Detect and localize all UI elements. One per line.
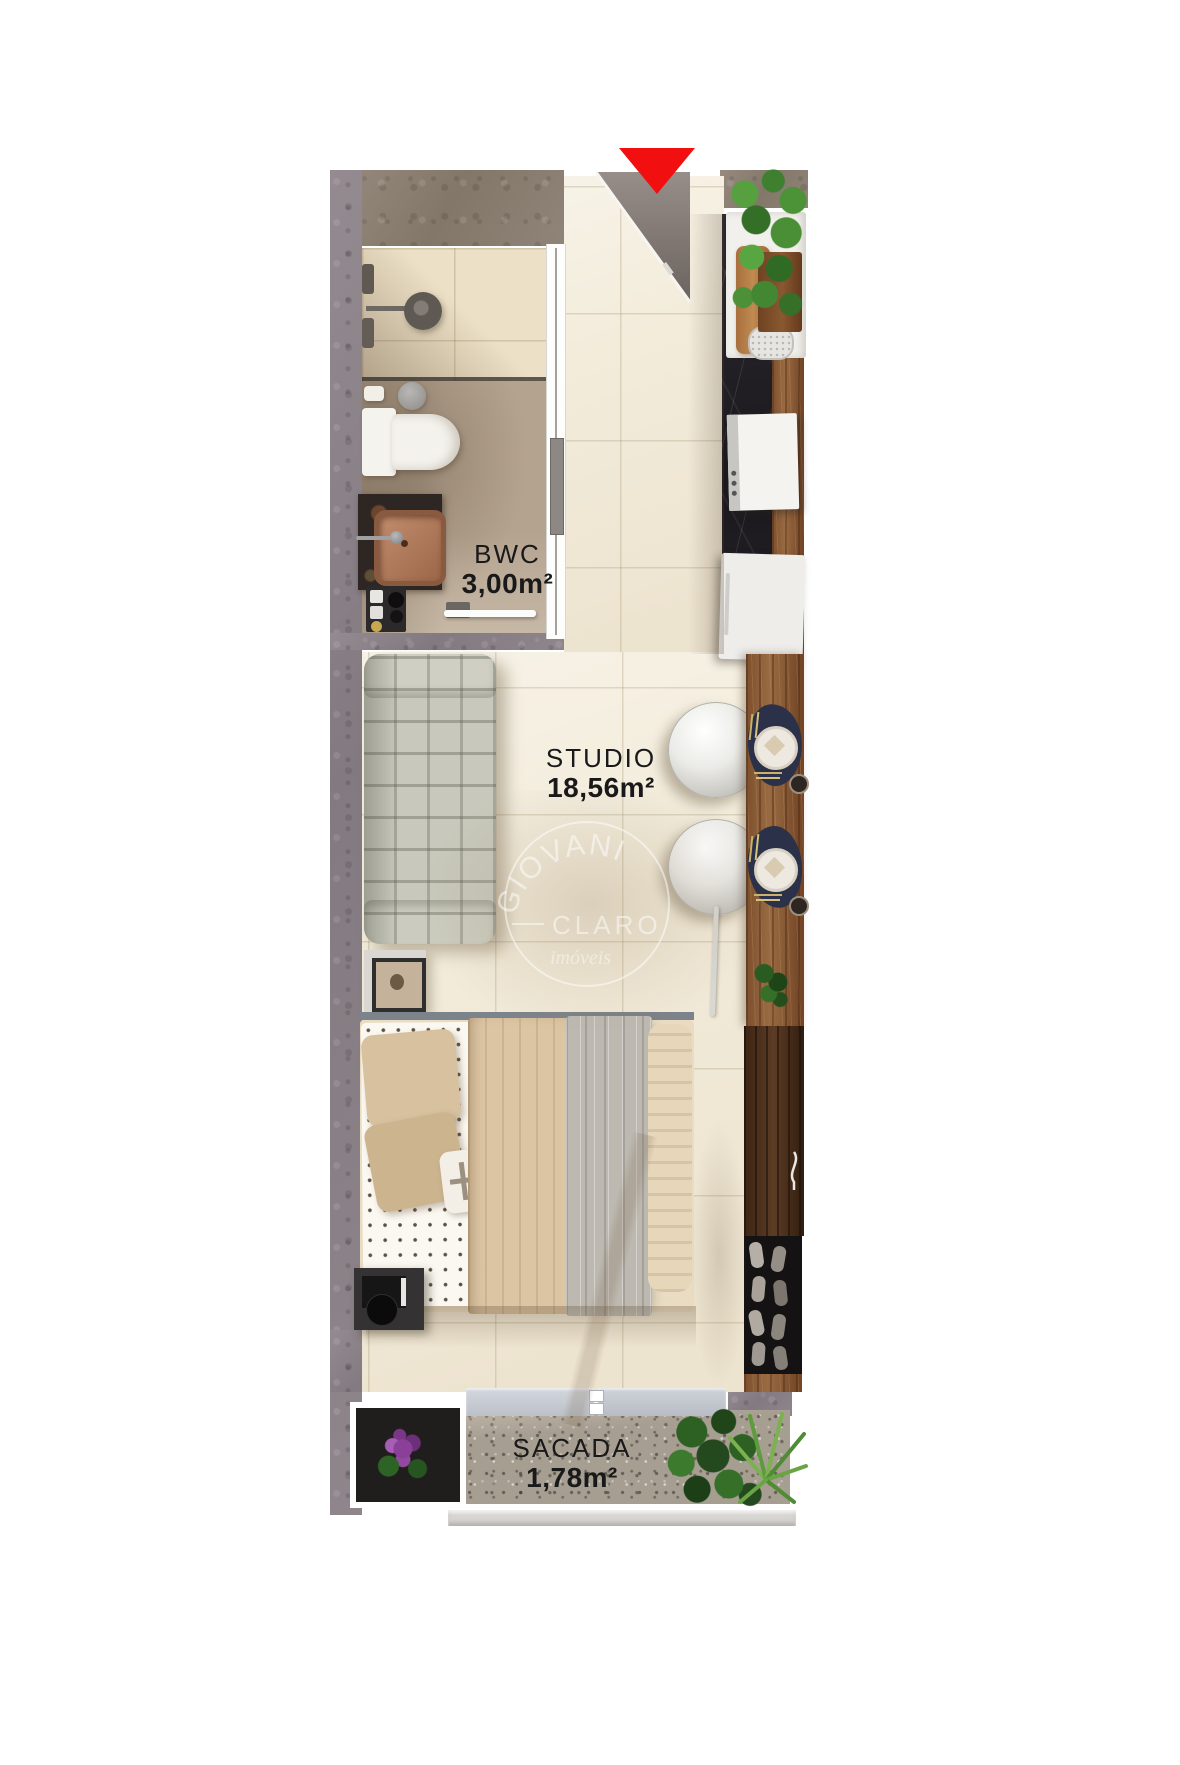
room-name: STUDIO: [480, 744, 722, 773]
fridge-handle: [724, 573, 730, 635]
cutlery-icon: [754, 772, 782, 774]
floor-shadow: [688, 214, 724, 654]
bed-blanket-beige: [468, 1018, 574, 1314]
book-pages: [401, 1278, 406, 1306]
shoe: [751, 1275, 766, 1302]
shower-valve: [362, 264, 374, 294]
drawer: [370, 606, 383, 619]
towel-rail: [444, 610, 536, 617]
dark-jar: [390, 610, 403, 623]
watermark-bottom: imóveis: [550, 947, 611, 969]
cup: [789, 896, 809, 916]
wall-bathroom-bottom: [330, 633, 564, 650]
watermark-middle: CLARO: [552, 910, 662, 940]
label-bwc: BWC 3,00m²: [415, 540, 600, 599]
hanger-icon: [786, 1150, 802, 1192]
shoe-rack-base: [744, 1374, 802, 1392]
shoe: [773, 1279, 789, 1306]
shower-head-icon: [404, 292, 442, 330]
oven-control-strip: [727, 415, 741, 511]
room-name: SACADA: [458, 1434, 686, 1463]
entrance-arrow-icon: [619, 148, 695, 194]
label-sacada: SACADA 1,78m²: [458, 1434, 686, 1493]
watermark: GIOVANI CLARO imóveis: [492, 812, 682, 1002]
oven-knob: [732, 491, 737, 496]
floor-shadow: [690, 1120, 748, 1390]
shower-glass-divider: [362, 377, 546, 381]
room-area: 3,00m²: [415, 569, 600, 600]
kitchen-plant: [726, 168, 812, 330]
shoe: [751, 1342, 766, 1367]
wall-top-left: [330, 170, 564, 246]
flower-plant: [370, 1420, 436, 1484]
cutlery-icon: [756, 899, 780, 901]
cutlery-icon: [756, 777, 780, 779]
bathroom-door: [550, 438, 564, 535]
dark-jar: [388, 592, 404, 608]
floor-shower: [362, 248, 546, 381]
oven: [727, 413, 799, 511]
room-name: BWC: [415, 540, 600, 569]
cup: [789, 774, 809, 794]
bed-pillow-column: [648, 1024, 692, 1292]
basket: [371, 621, 382, 632]
wardrobe: [744, 1026, 804, 1236]
label-studio: STUDIO 18,56m²: [480, 744, 722, 803]
photo: [390, 974, 404, 990]
room-area: 18,56m²: [480, 773, 722, 804]
drawer: [370, 590, 383, 603]
room-area: 1,78m²: [458, 1463, 686, 1494]
balcony-plant-palm: [724, 1408, 808, 1514]
watermark-top: GIOVANI: [492, 828, 631, 918]
toilet-cistern: [362, 408, 396, 476]
cutlery-icon: [754, 894, 782, 896]
sink-drain: [401, 540, 408, 547]
counter-plant: [748, 956, 794, 1014]
faucet-knob: [390, 531, 403, 544]
laundry-unit: [366, 586, 406, 632]
oven-knob: [731, 481, 736, 486]
floor-plan-canvas: GIOVANI CLARO imóveis BWC 3,00m² STUDIO …: [0, 0, 1180, 1765]
flush-plate: [398, 382, 426, 410]
toilet-paper: [364, 386, 384, 401]
shower-valve: [362, 318, 374, 348]
tray: [366, 1294, 398, 1326]
svg-text:GIOVANI: GIOVANI: [492, 828, 631, 918]
fridge: [719, 553, 806, 661]
toilet-bowl: [392, 414, 460, 470]
